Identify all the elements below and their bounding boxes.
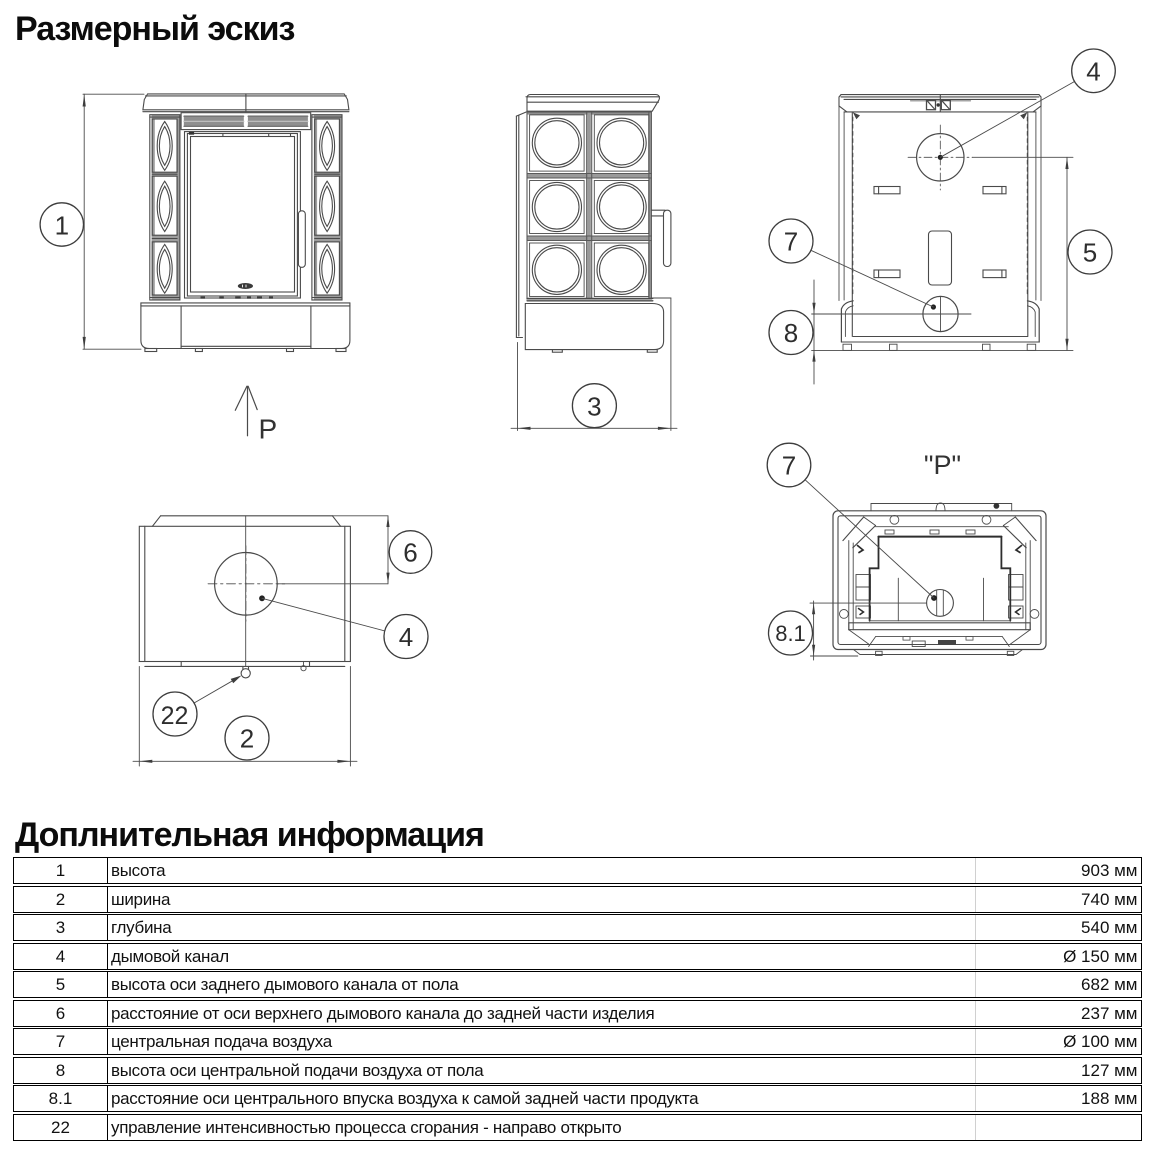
svg-text:8.1: 8.1 bbox=[775, 621, 806, 646]
svg-text:"P": "P" bbox=[924, 450, 961, 480]
svg-text:2: 2 bbox=[240, 724, 254, 754]
svg-text:4: 4 bbox=[399, 622, 413, 652]
svg-text:3: 3 bbox=[587, 391, 601, 421]
svg-text:5: 5 bbox=[1083, 238, 1097, 268]
svg-text:22: 22 bbox=[161, 702, 189, 730]
svg-text:7: 7 bbox=[782, 451, 796, 481]
svg-text:8: 8 bbox=[784, 318, 798, 348]
svg-text:P: P bbox=[259, 414, 278, 445]
svg-text:1: 1 bbox=[55, 210, 69, 240]
svg-text:6: 6 bbox=[403, 538, 417, 568]
svg-text:7: 7 bbox=[784, 227, 798, 257]
svg-text:4: 4 bbox=[1086, 57, 1100, 87]
